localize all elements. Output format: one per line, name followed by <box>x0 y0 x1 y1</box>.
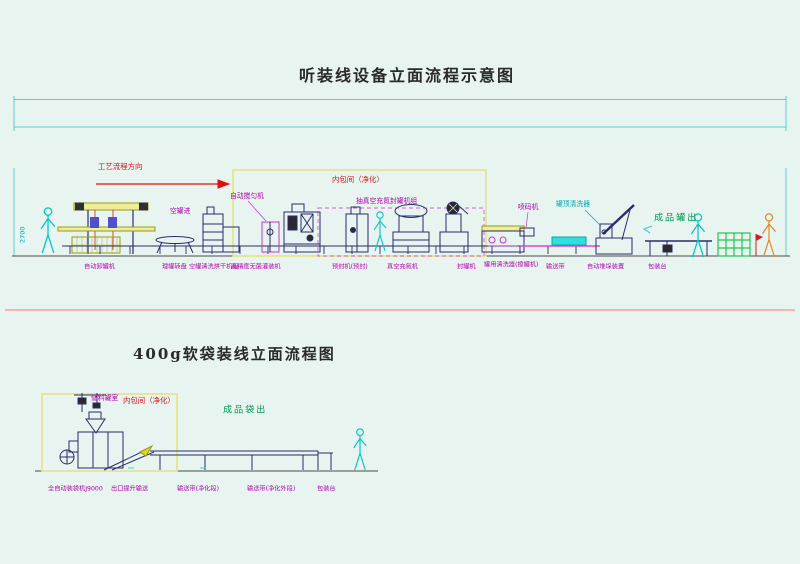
exit-conveyor-segment <box>520 237 600 246</box>
label-machine-pre-seamer: 预封机(预封) <box>332 264 368 270</box>
operator-figure <box>762 214 775 257</box>
label-empty-can-in: 空罐进 <box>170 208 190 215</box>
label-machine-pack-table: 包装台 <box>648 264 667 270</box>
label-exit-elevator: 出口提升输送 <box>111 486 148 492</box>
drawing-sheet: 听装线设备立面流程示意图 400g软袋装线立面流程图 工艺流程方向 内包间（净化… <box>0 0 800 564</box>
machine-vacuum-nitrogen <box>393 205 429 253</box>
label-machine-depalletizer: 自动卸罐机 <box>84 264 115 270</box>
operator-figure <box>41 208 55 253</box>
label-height-dimension: 2700 <box>20 226 27 243</box>
label-machine-turntable: 理罐转盘 <box>162 264 187 270</box>
label-hopper-room: 储料罐室 <box>91 395 118 402</box>
label-product-out-top: 成品罐出 <box>654 214 698 223</box>
operator-figure <box>354 429 367 470</box>
label-bag-packer: 全自动装袋机J9000 <box>48 486 103 492</box>
label-machine-palletizer: 自动堆垛装置 <box>587 264 624 270</box>
machine-aseptic-filler <box>284 204 320 252</box>
top-diagram-title: 听装线设备立面流程示意图 <box>299 62 515 86</box>
label-coder-callout: 喷码机 <box>518 204 538 211</box>
label-machine-conveyor: 输送带 <box>546 264 565 270</box>
machine-pre-seamer <box>346 207 368 252</box>
incline-elevator-conveyor <box>104 446 154 470</box>
label-clean-room-bottom: 内包间（净化） <box>123 398 175 405</box>
machine-can-seamer <box>440 202 468 252</box>
machine-can-turntable <box>156 237 194 254</box>
flow-direction-arrow <box>96 180 229 188</box>
machine-inkjet-coder <box>520 212 534 236</box>
label-conveyor-outside: 输送带(净化外段) <box>247 486 295 492</box>
label-conveyor-clean: 输送带(净化段) <box>177 486 219 492</box>
label-can-top-washer: 罐顶清洗器 <box>556 201 590 208</box>
flag-marker <box>756 234 763 256</box>
machine-can-wiper <box>482 226 524 252</box>
bottom-diagram-title: 400g软袋装线立面流程图 <box>133 343 336 364</box>
finished-goods-pallet <box>718 233 750 256</box>
main-conveyor <box>62 246 600 254</box>
label-machine-filler: 高精度无菌灌装机 <box>231 264 281 270</box>
machine-bag-packer <box>60 393 123 468</box>
label-product-out-bottom: 成品袋出 <box>223 406 267 415</box>
label-clean-room-top: 内包间（净化） <box>332 177 384 184</box>
label-machine-seamer: 封罐机 <box>457 264 476 270</box>
label-vacuum-group: 抽真空充氮封罐机组 <box>356 198 417 205</box>
label-machine-vacuum: 真空充氮机 <box>387 264 418 270</box>
operator-figure <box>374 212 386 251</box>
machine-auto-mixer <box>248 201 279 252</box>
flow-return-arrow <box>644 226 652 233</box>
label-machine-wiper: 罐用清洗器(擦罐机) <box>484 262 538 268</box>
label-pack-table-bottom: 包装台 <box>317 486 336 492</box>
label-flow-direction: 工艺流程方向 <box>98 164 142 171</box>
label-mixer-callout: 自动搅匀机 <box>230 193 264 200</box>
